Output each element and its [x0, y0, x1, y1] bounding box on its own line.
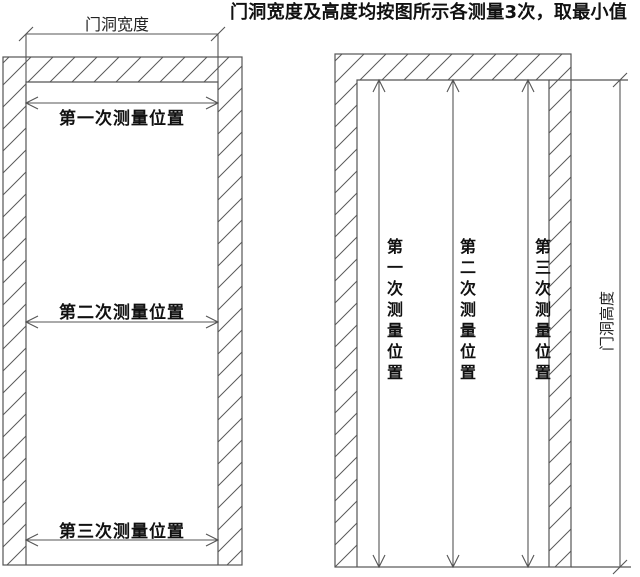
height-dimension-label-wrap: 门洞高度 [598, 289, 614, 353]
height-dimension-label: 门洞高度 [596, 291, 617, 351]
instruction-title: 门洞宽度及高度均按图所示各测量3次，取最小值 [230, 0, 640, 25]
width-dimension-label: 门洞宽度 [57, 11, 177, 35]
measurement-instruction-diagram: 门洞宽度及高度均按图所示各测量3次，取最小值 门洞宽度 第一次测量位置 第二次测… [0, 0, 640, 577]
right-measurement-label-1: 第一次测量位置 [381, 238, 405, 398]
left-measurement-label-1: 第一次测量位置 [22, 104, 222, 129]
right-measurement-label-2: 第二次测量位置 [454, 238, 478, 398]
right-measurement-label-3: 第三次测量位置 [529, 238, 553, 398]
left-measurement-label-3: 第三次测量位置 [22, 517, 222, 542]
left-measurement-label-2: 第二次测量位置 [22, 298, 222, 323]
